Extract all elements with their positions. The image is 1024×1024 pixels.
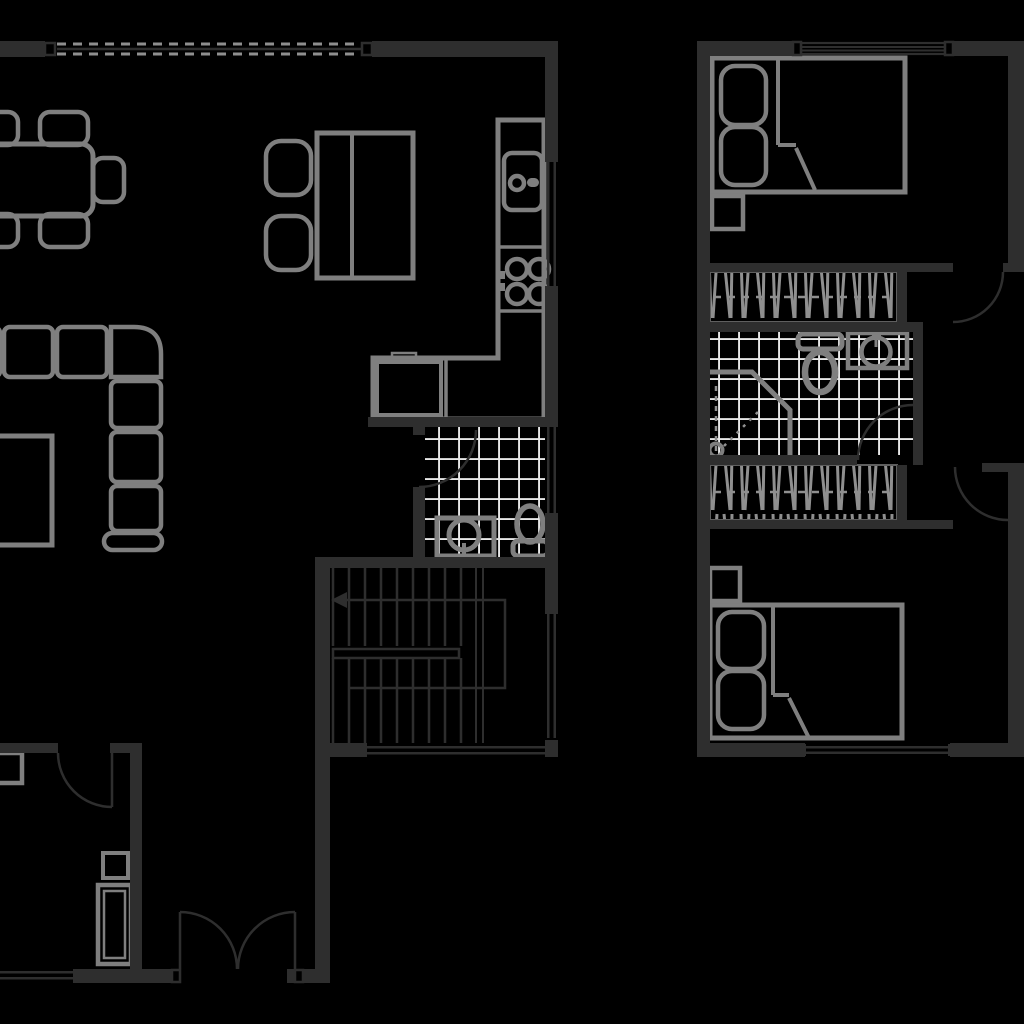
kitchen-window [547,160,550,288]
blanket-fold [773,605,809,738]
side-table-set [266,133,413,278]
stair-window [547,612,550,738]
kitchen-sink [504,153,542,210]
wall [697,41,793,56]
floor-plan-image [0,0,1024,1024]
stair-treads-lower [333,658,461,743]
wall [413,487,425,557]
wall [110,743,142,753]
lower-floor-plan [0,41,558,983]
rear-window [367,746,545,749]
sink-faucet-icon [527,178,539,187]
nightstand [712,196,743,229]
bedroom-bottom-door-swing [955,467,1008,520]
wall [697,455,857,465]
entry-window [0,971,73,974]
built-in-appliance [377,362,441,415]
wall [545,290,558,417]
sofa-corner-cushion [111,327,161,377]
stair-walk-line [345,600,505,688]
wall [368,417,558,427]
stair-treads-upper [333,568,461,646]
bathroom-tile-floor [425,427,545,557]
sofa-armrest [104,533,162,550]
window-cap [545,286,558,290]
window-cap [545,610,558,614]
upper-floor-plan [697,41,1024,757]
cooktop-knob [500,271,505,279]
dining-table-set [0,112,124,247]
window-glazing [801,47,945,51]
pillow [721,66,766,125]
wall [315,557,558,568]
kitchen [373,120,549,419]
wall [413,427,425,435]
side-chair [266,216,311,270]
pillow [718,671,764,729]
pillow [718,612,764,669]
rear-window [367,752,545,755]
folding-glass-wall [45,43,372,55]
corner-cabinet [0,753,22,783]
wall [697,263,953,272]
small-cabinet [103,853,128,878]
bedroom-top-furniture [712,58,905,229]
window-cap [545,513,558,517]
sofa-cushion [111,381,161,428]
bathroom-window [554,419,557,515]
wall [950,743,1024,757]
wall [697,41,710,757]
door-jamb [295,970,303,982]
blanket-fold [778,58,815,190]
window-cap [73,969,79,983]
side-table [317,133,413,278]
window-cap [802,744,806,756]
dining-chair [0,112,18,145]
stair-window [554,612,557,738]
sofa-cushion [57,327,107,377]
dining-chair [40,214,88,247]
wall [130,753,142,969]
window-cap [545,158,558,162]
sofa-cushion [111,486,161,531]
wall [545,41,558,158]
window-jamb [793,42,801,55]
wall [0,41,45,57]
wall [1008,472,1024,757]
wall [697,322,923,332]
dining-chair [93,158,124,202]
wall [982,463,1024,472]
entry-door-left-swing [180,912,237,969]
wall [315,557,330,969]
lower-floor-windows [0,158,558,983]
floor-plan-drawing [0,0,1024,1024]
burner [507,259,527,279]
stair-landing-edge [476,568,483,743]
wall [697,743,805,757]
wall [897,263,907,322]
dining-chair [40,112,88,145]
burner [507,284,527,304]
bedroom-top-window [801,43,945,54]
storage-room-door-swing [58,753,112,807]
wall [697,520,953,529]
wall [545,740,558,757]
wall [372,41,558,57]
dining-table [0,144,93,216]
coffee-table [0,436,52,545]
side-chair [266,141,311,195]
wall [79,969,180,983]
door-jamb [172,970,180,982]
bathroom-window [547,419,550,515]
bedroom-bottom-furniture [710,568,902,738]
bedroom-top-door-swing [953,272,1003,322]
window-cap [948,744,952,756]
wall [897,465,907,520]
entry-window [0,977,73,980]
wall [913,322,923,465]
bedroom-bottom-window [805,746,950,749]
door-jamb [362,43,372,55]
bedroom-bottom-window [805,752,950,755]
kitchen-window [554,160,557,288]
sink-drain [510,176,524,190]
cooktop-knob [500,283,505,291]
dining-chair [0,214,18,247]
stair-handrail [333,649,459,658]
door-jamb [45,43,55,55]
kitchen-counter [373,120,544,419]
pillow [721,127,766,185]
window-jamb [945,42,953,55]
tall-cabinet-inner [104,891,125,958]
wall [287,969,330,983]
wall [1003,263,1024,272]
sofa-cushion [111,432,161,482]
wall [315,743,367,757]
entry-door-right-swing [238,912,295,969]
nightstand [710,568,740,601]
sofa-cushion [4,327,53,377]
staircase [331,568,505,743]
window-cap [363,743,367,757]
wall [1008,41,1024,272]
wall [0,743,58,753]
